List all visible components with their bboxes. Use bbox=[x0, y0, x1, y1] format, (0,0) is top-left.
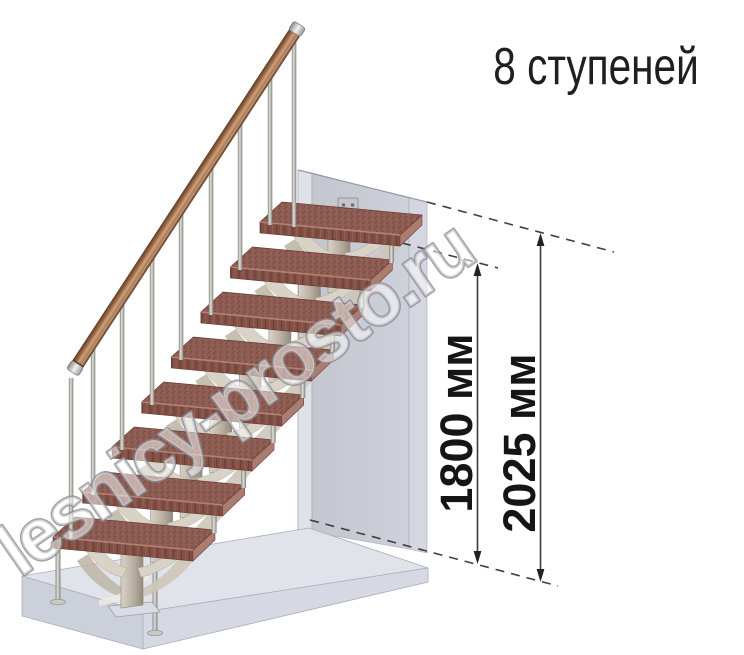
dimension-1800: 1800 мм bbox=[431, 263, 482, 564]
staircase-diagram: 1800 мм 2025 мм bbox=[0, 0, 744, 655]
arrow-down-icon bbox=[537, 569, 545, 582]
dimension-label-2025: 2025 мм bbox=[494, 353, 545, 532]
arrow-up-icon bbox=[537, 233, 545, 246]
diagram-canvas: 1800 мм 2025 мм bbox=[0, 0, 744, 655]
arrow-down-icon bbox=[474, 551, 482, 564]
diagram-title: 8 ступеней bbox=[493, 37, 699, 95]
dimension-label-1800: 1800 мм bbox=[431, 333, 482, 512]
dimension-2025: 2025 мм bbox=[494, 233, 545, 582]
